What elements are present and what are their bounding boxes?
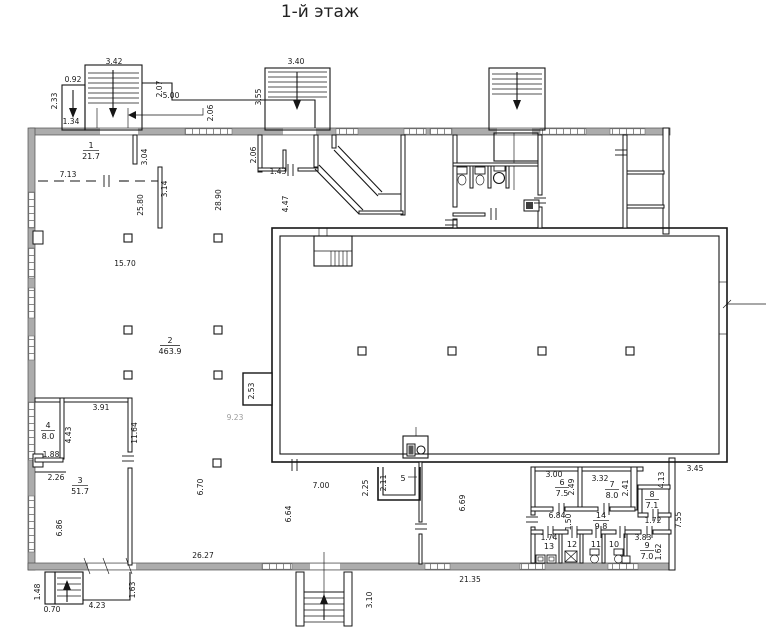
room-8-area: 7.1 (646, 501, 659, 510)
dim-m211: 2.11 (379, 474, 388, 491)
dim-b355: 3.55 (254, 88, 263, 105)
page-title: 1-й этаж (281, 2, 359, 22)
room-9-area: 7.0 (641, 552, 654, 561)
dim-r755: 7.55 (674, 511, 683, 528)
wc-bowl (417, 446, 425, 454)
dim-m225: 2.25 (361, 479, 370, 496)
staircase-top-left (62, 65, 315, 130)
dim-r241: 2.41 (621, 479, 630, 496)
toilet-icon (458, 175, 466, 185)
partitions-top (38, 135, 664, 228)
dim-h2890: 28.90 (214, 189, 223, 211)
exit-arrow-up (63, 580, 71, 590)
dim-c304: 3.04 (140, 148, 149, 165)
washroom-fixtures (457, 166, 505, 185)
dim-f2135: 21.35 (459, 575, 481, 584)
equipment-box-dark (526, 202, 533, 209)
stair-direction-arrow (513, 100, 521, 110)
dim-l686: 6.86 (55, 519, 64, 536)
dim-a233: 2.33 (50, 92, 59, 109)
dim-b340: 3.40 (288, 57, 305, 66)
stair-direction-arrow (293, 100, 301, 110)
room-1-area: 21.7 (82, 152, 100, 161)
dim-r150: 1.50 (564, 513, 573, 530)
floor-plan-drawing: 1-й этаж (0, 0, 777, 633)
dim-f163: 1.63 (128, 581, 137, 598)
dim-m670: 6.70 (196, 478, 205, 495)
room-7-number: 7 (609, 480, 614, 489)
toilet-icon (615, 555, 623, 563)
room-14-area: 9.8 (595, 522, 608, 531)
dim-f148: 1.48 (33, 583, 42, 600)
dim-a206: 2.06 (206, 104, 215, 121)
dim-h253: 2.53 (247, 382, 256, 399)
dim-l443: 4.43 (64, 426, 73, 443)
dim-r300: 3.00 (546, 470, 563, 479)
wc-cistern (409, 446, 414, 455)
windows (29, 129, 645, 570)
stair-direction-arrow (109, 108, 117, 118)
dim-m700: 7.00 (313, 481, 330, 490)
columns (124, 234, 634, 467)
room-labels: 1 21.7 2 463.9 3 51.7 4 8.0 5 6 7.5 7 8.… (41, 141, 659, 561)
entry-arrow-up (320, 594, 328, 604)
room-2-number: 2 (167, 336, 172, 345)
floor-plan-page: 1-й этаж (0, 0, 777, 633)
dim-r172: 1.72 (645, 516, 662, 525)
toilet-icon (591, 555, 599, 563)
path-arrow-left (128, 111, 136, 119)
room-10-number: 10 (609, 540, 619, 549)
toilet-icon (476, 175, 484, 185)
dim-c713: 7.13 (60, 170, 77, 179)
room-13-number: 13 (544, 542, 554, 551)
room-11-number: 11 (591, 540, 601, 549)
dim-f2627: 26.27 (192, 551, 214, 560)
room-4-number: 4 (45, 421, 50, 430)
dim-h1570: 15.70 (114, 259, 136, 268)
room-14-number: 14 (596, 511, 606, 520)
dim-f070: 0.70 (44, 605, 61, 614)
inner-hall (243, 228, 766, 462)
dim-a092: 0.92 (65, 75, 82, 84)
dim-r162: 1.62 (654, 543, 663, 560)
dim-r174: 1.74 (541, 533, 558, 542)
staircase-top-middle (265, 68, 330, 130)
dim-r249: 2.49 (567, 478, 576, 495)
room-9-number: 9 (644, 541, 649, 550)
room-3-area: 51.7 (71, 487, 89, 496)
dim-h447: 4.47 (281, 195, 290, 212)
dim-b143: 1.43 (270, 167, 287, 176)
room-6-number: 6 (559, 478, 564, 487)
room-8-number: 8 (649, 490, 654, 499)
dim-b206: 2.06 (249, 146, 258, 163)
dim-l391: 3.91 (93, 403, 110, 412)
dim-f310: 3.10 (365, 591, 374, 608)
room-1-number: 1 (88, 141, 93, 150)
dim-m664: 6.64 (284, 505, 293, 522)
dim-f423: 4.23 (89, 601, 106, 610)
right-wall-upper (663, 128, 669, 234)
room-2-area: 463.9 (159, 347, 182, 356)
room-12-number: 12 (567, 540, 577, 549)
sink-icon (494, 173, 505, 184)
room-4-area: 8.0 (42, 432, 55, 441)
dim-c314: 3.14 (160, 180, 169, 197)
room-7-area: 8.0 (606, 491, 619, 500)
dim-h2580: 25.80 (136, 194, 145, 216)
dim-l226: 2.26 (48, 473, 65, 482)
dim-h923: 9.23 (227, 413, 244, 422)
dim-a500: 5.00 (163, 91, 180, 100)
dim-r383: 3.83 (635, 533, 652, 542)
dim-a134: 1.34 (63, 117, 80, 126)
dim-m669: 6.69 (458, 494, 467, 511)
dim-r332: 3.32 (592, 474, 609, 483)
room-5-number: 5 (400, 474, 405, 483)
dim-l188: 1.88 (43, 450, 60, 459)
room-3-number: 3 (77, 476, 82, 485)
dim-r345: 3.45 (687, 464, 704, 473)
dim-r413: 4.13 (657, 471, 666, 488)
dim-a342: 3.42 (106, 57, 123, 66)
dim-l1164: 11.64 (130, 422, 139, 444)
wall-pilaster (33, 231, 43, 244)
